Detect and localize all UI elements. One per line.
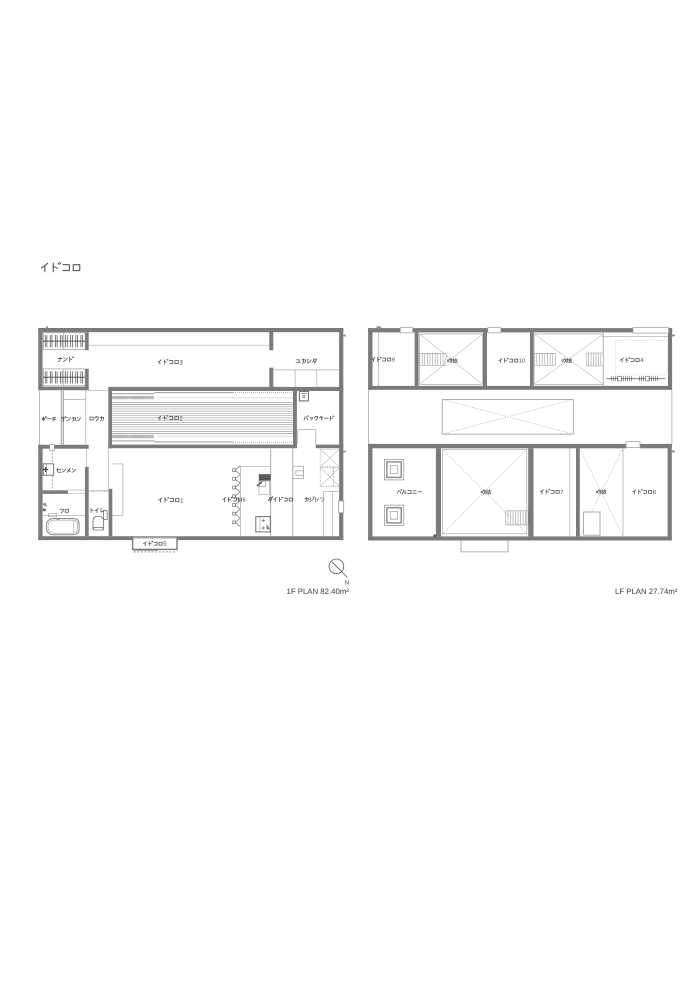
svg-text:1F PLAN 82.40m²: 1F PLAN 82.40m² (287, 587, 350, 596)
svg-text:7: 7 (560, 490, 563, 496)
svg-text:6: 6 (243, 497, 246, 504)
svg-text:0: 0 (522, 358, 525, 365)
svg-text:ツ: ツ (319, 497, 325, 504)
svg-text:N: N (345, 580, 349, 587)
svg-text:9: 9 (392, 357, 395, 364)
svg-text:1: 1 (180, 497, 184, 504)
svg-text:LF PLAN 27.74m²: LF PLAN 27.74m² (615, 587, 678, 596)
svg-text:2: 2 (179, 415, 183, 422)
svg-text:8: 8 (653, 489, 656, 496)
svg-text:3: 3 (179, 359, 183, 366)
svg-text:4: 4 (640, 358, 644, 364)
svg-text:5: 5 (163, 542, 166, 548)
